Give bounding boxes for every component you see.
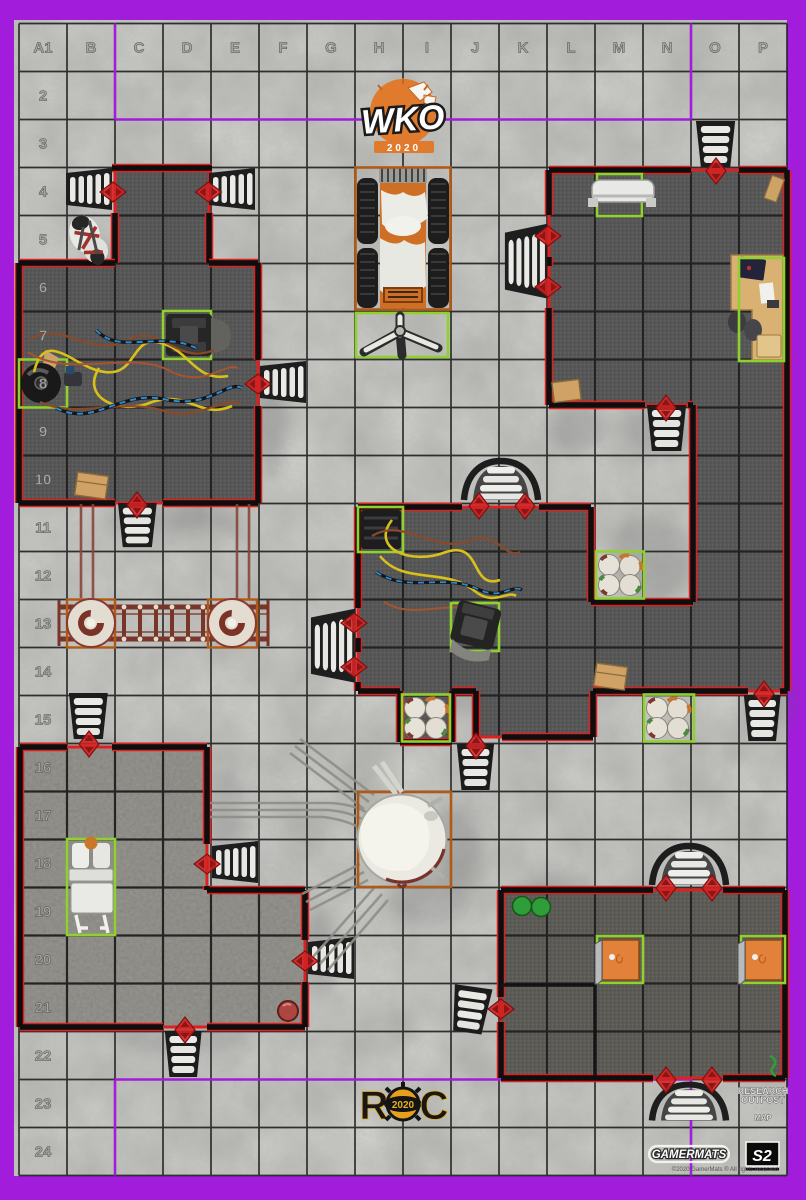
svg-text:2: 2	[39, 88, 47, 105]
svg-text:10: 10	[35, 472, 52, 489]
svg-text:WKO: WKO	[360, 98, 446, 142]
svg-text:OUTPOST: OUTPOST	[741, 1095, 785, 1105]
svg-text:C: C	[134, 40, 145, 57]
svg-text:B: B	[86, 40, 97, 57]
svg-text:A1: A1	[33, 40, 52, 57]
svg-text:P: P	[758, 40, 768, 57]
svg-text:7: 7	[39, 328, 47, 345]
svg-text:M: M	[613, 40, 626, 57]
svg-text:I: I	[425, 40, 429, 57]
svg-text:MAP: MAP	[755, 1113, 772, 1122]
svg-text:O: O	[709, 40, 721, 57]
svg-text:R: R	[360, 1084, 389, 1128]
svg-text:S2: S2	[752, 1148, 772, 1165]
svg-text:14: 14	[35, 664, 52, 681]
svg-text:6: 6	[39, 280, 47, 297]
svg-text:13: 13	[35, 616, 52, 633]
svg-text:E: E	[230, 40, 240, 57]
svg-text:17: 17	[35, 808, 52, 825]
svg-text:N: N	[662, 40, 673, 57]
svg-text:21: 21	[35, 1000, 52, 1017]
svg-text:GAMERMATS: GAMERMATS	[652, 1149, 727, 1161]
svg-text:F: F	[278, 40, 287, 57]
svg-text:5: 5	[39, 232, 47, 249]
svg-text:3: 3	[39, 136, 47, 153]
svg-text:4: 4	[39, 184, 48, 201]
svg-text:8: 8	[39, 376, 47, 393]
svg-text:15: 15	[35, 712, 52, 729]
svg-text:24: 24	[35, 1144, 52, 1161]
svg-text:G: G	[325, 40, 337, 57]
svg-text:22: 22	[35, 1048, 52, 1065]
svg-text:19: 19	[35, 904, 52, 921]
svg-text:2020: 2020	[392, 1100, 415, 1111]
svg-text:20: 20	[35, 952, 52, 969]
svg-text:©2020 GamerMats ® All rights r: ©2020 GamerMats ® All rights reserved	[672, 1166, 778, 1173]
svg-text:D: D	[182, 40, 193, 57]
svg-text:12: 12	[35, 568, 52, 585]
svg-text:23: 23	[35, 1096, 52, 1113]
svg-text:18: 18	[35, 856, 52, 873]
svg-text:C: C	[420, 1084, 449, 1128]
svg-text:9: 9	[39, 424, 47, 441]
svg-text:16: 16	[35, 760, 52, 777]
svg-text:J: J	[471, 40, 479, 57]
svg-text:K: K	[518, 40, 529, 57]
svg-text:L: L	[566, 40, 575, 57]
svg-text:2020: 2020	[387, 143, 421, 154]
svg-text:H: H	[374, 40, 385, 57]
svg-text:11: 11	[35, 520, 51, 537]
